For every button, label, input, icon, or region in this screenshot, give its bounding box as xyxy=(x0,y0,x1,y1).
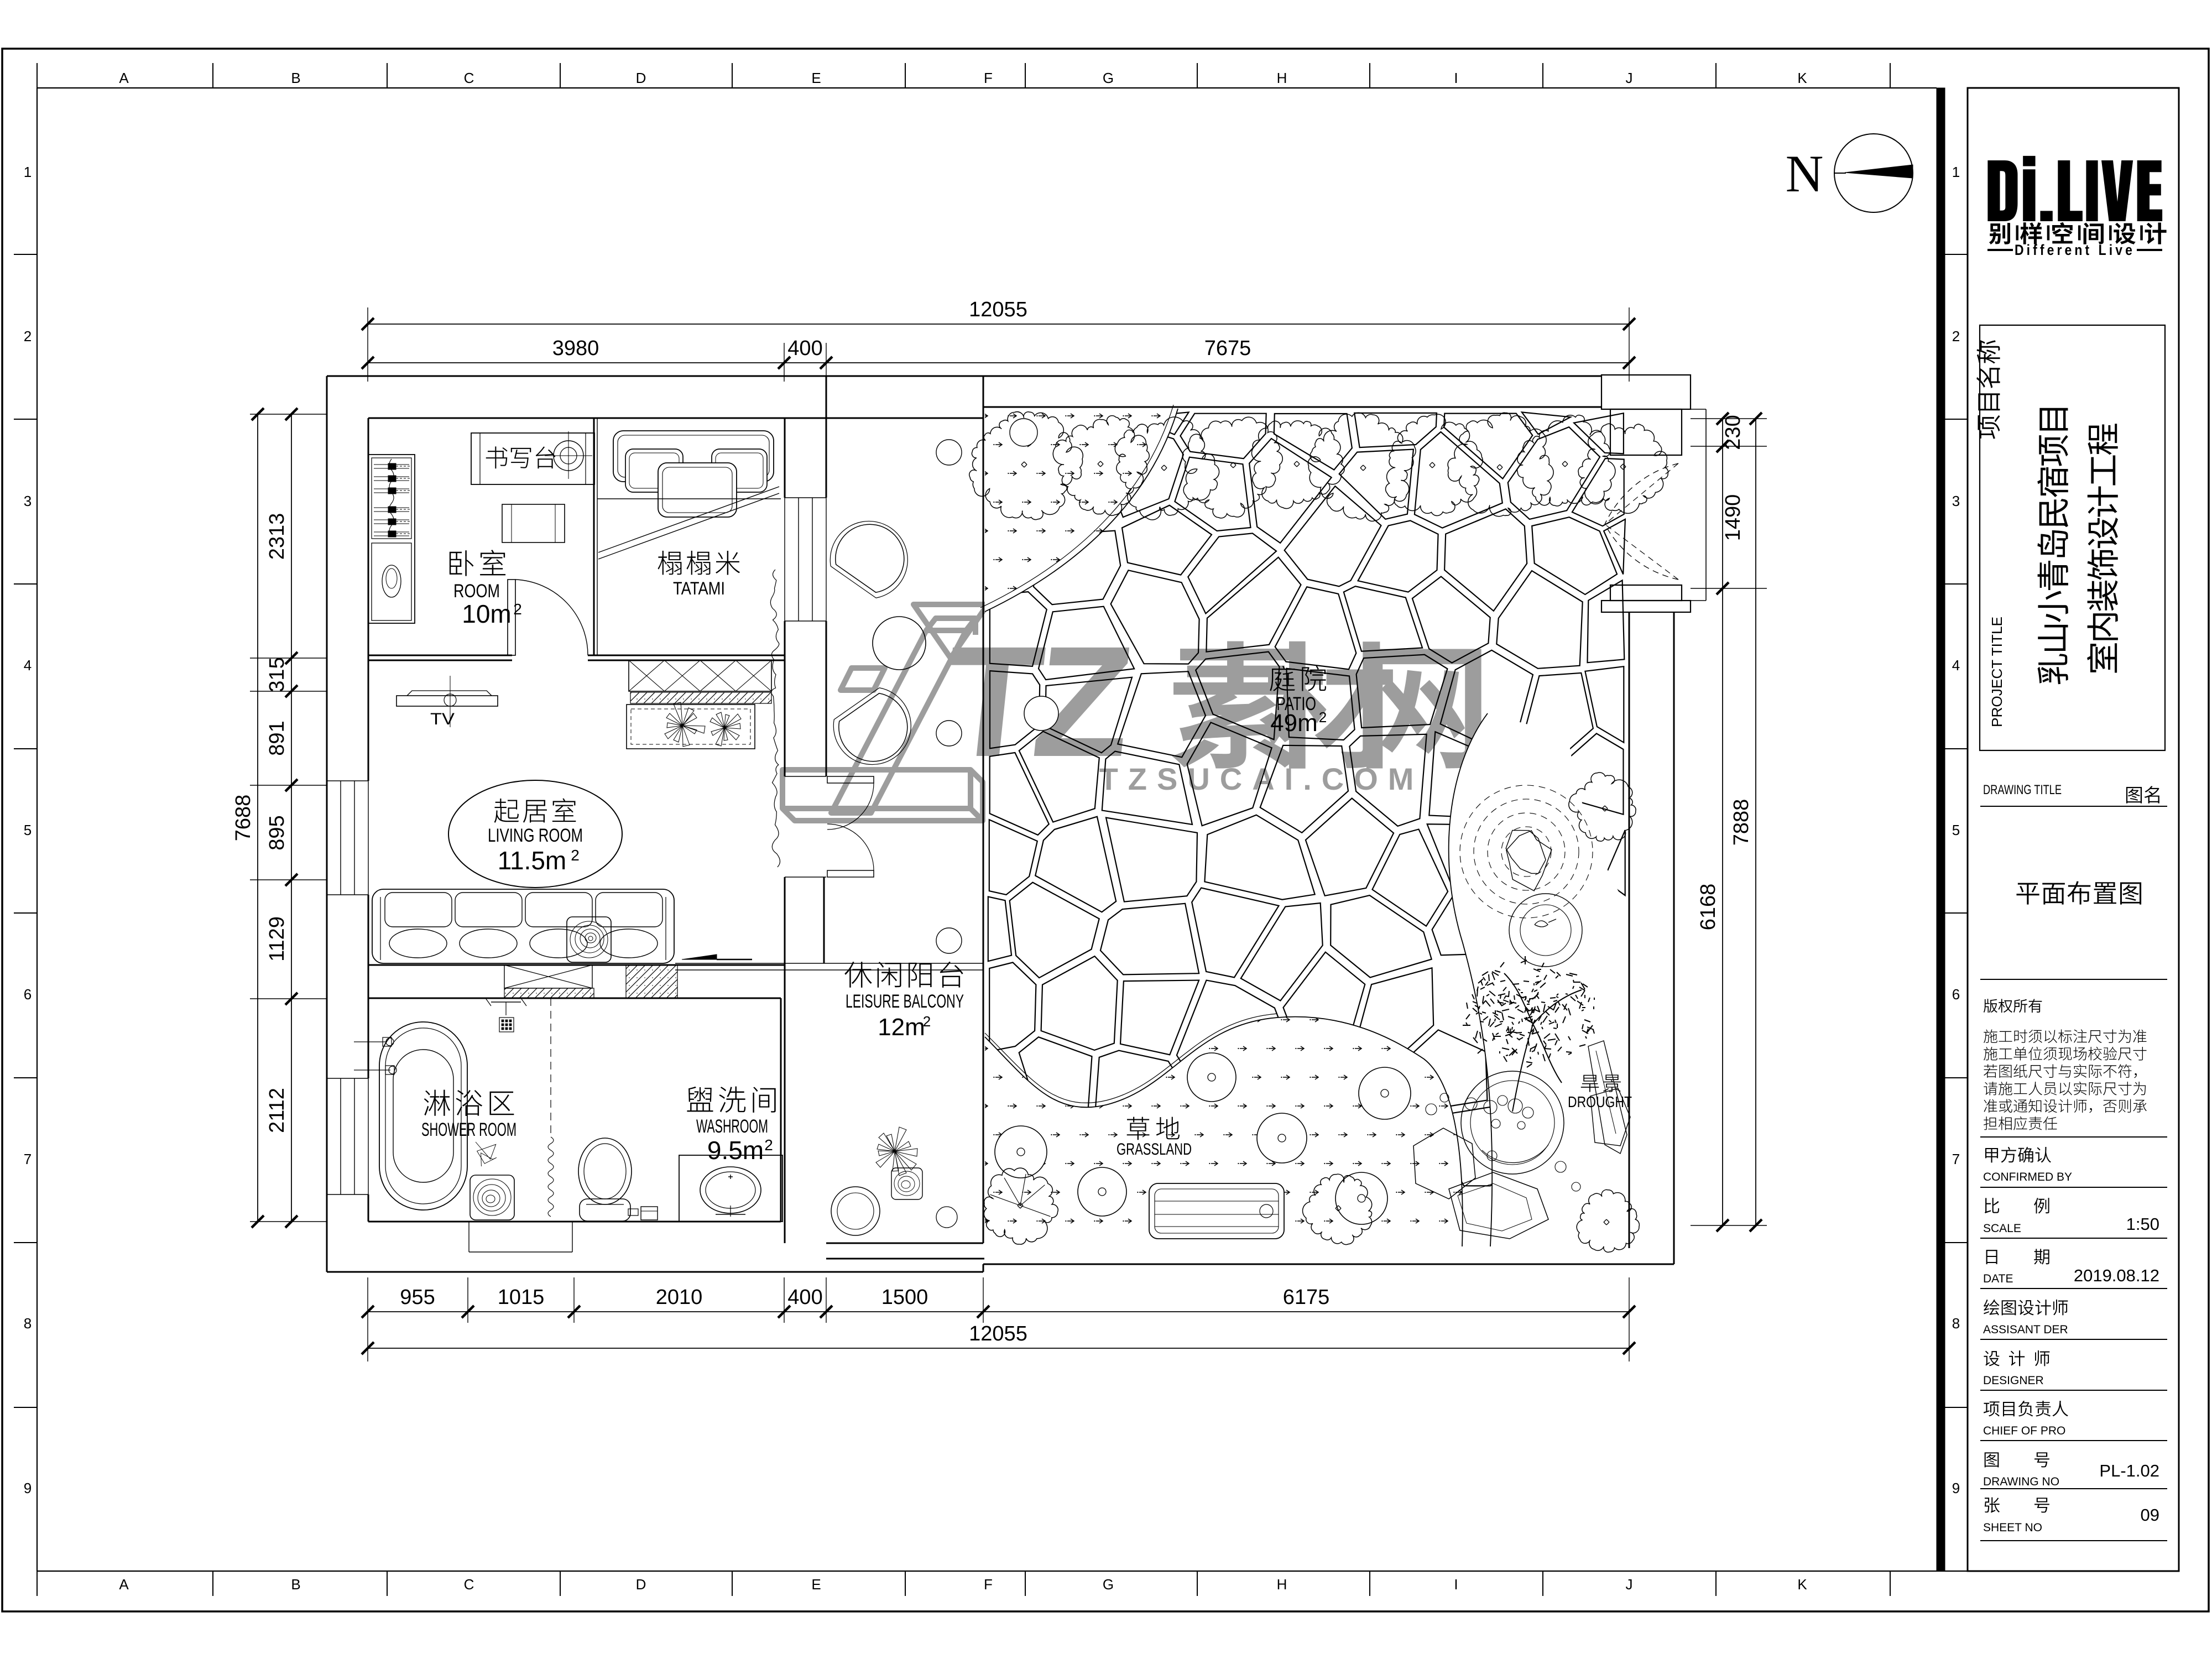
svg-text:2: 2 xyxy=(923,1013,931,1030)
svg-text:2019.08.12: 2019.08.12 xyxy=(2074,1266,2159,1285)
svg-text:DRAWING NO: DRAWING NO xyxy=(1983,1475,2059,1488)
svg-text:400: 400 xyxy=(787,1286,822,1309)
svg-text:Different Live: Different Live xyxy=(2015,242,2135,258)
svg-text:3: 3 xyxy=(1952,493,1960,509)
svg-text:2: 2 xyxy=(1319,709,1327,726)
svg-text:7: 7 xyxy=(24,1151,32,1167)
svg-text:I: I xyxy=(1454,1576,1458,1593)
svg-text:955: 955 xyxy=(400,1286,435,1309)
svg-text:1: 1 xyxy=(1952,164,1960,180)
svg-text:G: G xyxy=(1103,70,1114,86)
svg-text:ROOM: ROOM xyxy=(453,581,500,602)
svg-text:230: 230 xyxy=(1721,415,1745,450)
svg-text:I: I xyxy=(1454,70,1458,86)
svg-text:09: 09 xyxy=(2141,1505,2159,1525)
svg-text:6: 6 xyxy=(24,986,32,1003)
svg-text:F: F xyxy=(984,1576,993,1593)
svg-text:5: 5 xyxy=(24,822,32,838)
svg-text:2: 2 xyxy=(1952,328,1960,345)
svg-text:6168: 6168 xyxy=(1697,884,1720,931)
svg-text:J: J xyxy=(1626,1576,1633,1593)
svg-text:K: K xyxy=(1797,70,1807,86)
svg-text:4: 4 xyxy=(24,657,32,674)
svg-text:8: 8 xyxy=(1952,1315,1960,1332)
svg-text:49m: 49m xyxy=(1270,709,1318,737)
svg-text:8: 8 xyxy=(24,1315,32,1332)
svg-text:DATE: DATE xyxy=(1983,1272,2013,1285)
svg-text:9: 9 xyxy=(1952,1480,1960,1496)
svg-text:315: 315 xyxy=(265,657,289,692)
svg-text:TV: TV xyxy=(430,710,455,728)
svg-text:H: H xyxy=(1277,1576,1287,1593)
svg-text:ASSISANT DER: ASSISANT DER xyxy=(1983,1323,2068,1336)
svg-text:A: A xyxy=(119,70,129,86)
svg-text:7675: 7675 xyxy=(1204,337,1251,360)
svg-text:C: C xyxy=(464,1576,474,1593)
svg-text:N: N xyxy=(1786,144,1824,203)
svg-text:TATAMI: TATAMI xyxy=(673,578,725,598)
svg-text:A: A xyxy=(119,1576,129,1593)
svg-text:2: 2 xyxy=(571,847,580,864)
svg-text:D: D xyxy=(636,70,646,86)
svg-text:1: 1 xyxy=(24,164,32,180)
svg-text:2112: 2112 xyxy=(265,1088,289,1133)
svg-text:CHIEF OF PRO: CHIEF OF PRO xyxy=(1983,1425,2065,1437)
svg-text:9.5m: 9.5m xyxy=(707,1136,764,1165)
svg-text:GRASSLAND: GRASSLAND xyxy=(1117,1140,1192,1159)
svg-text:12055: 12055 xyxy=(969,298,1027,321)
svg-text:3: 3 xyxy=(24,493,32,509)
svg-text:6175: 6175 xyxy=(1283,1286,1330,1309)
svg-text:9: 9 xyxy=(24,1480,32,1496)
svg-text:400: 400 xyxy=(787,337,822,360)
svg-text:E: E xyxy=(811,70,821,86)
svg-text:2: 2 xyxy=(764,1136,773,1154)
svg-text:SHEET NO: SHEET NO xyxy=(1983,1521,2042,1534)
svg-text:B: B xyxy=(291,70,300,86)
svg-text:K: K xyxy=(1797,1576,1807,1593)
svg-text:2010: 2010 xyxy=(656,1286,703,1309)
svg-text:DESIGNER: DESIGNER xyxy=(1983,1374,2044,1387)
svg-text:1015: 1015 xyxy=(498,1286,545,1309)
svg-text:2: 2 xyxy=(513,601,522,618)
svg-text:B: B xyxy=(291,1576,300,1593)
svg-text:7: 7 xyxy=(1952,1151,1960,1167)
svg-text:895: 895 xyxy=(265,815,289,850)
svg-text:G: G xyxy=(1103,1576,1114,1593)
svg-text:F: F xyxy=(984,70,993,86)
svg-text:3980: 3980 xyxy=(552,337,599,360)
svg-text:1129: 1129 xyxy=(265,916,289,962)
svg-text:SCALE: SCALE xyxy=(1983,1222,2021,1235)
svg-text:1500: 1500 xyxy=(881,1286,928,1309)
svg-text:H: H xyxy=(1277,70,1287,86)
svg-text:5: 5 xyxy=(1952,822,1960,838)
svg-text:12m: 12m xyxy=(878,1014,925,1041)
svg-text:E: E xyxy=(811,1576,821,1593)
svg-text:2313: 2313 xyxy=(265,513,289,560)
svg-text:1:50: 1:50 xyxy=(2126,1214,2159,1234)
svg-text:10m: 10m xyxy=(462,599,511,628)
svg-text:WASHROOM: WASHROOM xyxy=(696,1116,768,1137)
svg-text:CONFIRMED BY: CONFIRMED BY xyxy=(1983,1171,2072,1183)
svg-text:DROUGHT: DROUGHT xyxy=(1568,1093,1632,1110)
svg-text:PL-1.02: PL-1.02 xyxy=(2099,1461,2159,1480)
svg-text:2: 2 xyxy=(24,328,32,345)
svg-text:891: 891 xyxy=(265,721,289,755)
svg-text:7688: 7688 xyxy=(232,795,255,842)
svg-text:4: 4 xyxy=(1952,657,1960,674)
svg-text:LIVING ROOM: LIVING ROOM xyxy=(488,825,583,846)
svg-text:11.5m: 11.5m xyxy=(498,846,566,875)
svg-text:DRAWING TITLE: DRAWING TITLE xyxy=(1983,782,2062,797)
svg-text:SHOWER ROOM: SHOWER ROOM xyxy=(421,1119,517,1140)
svg-text:6: 6 xyxy=(1952,986,1960,1003)
svg-text:LEISURE BALCONY: LEISURE BALCONY xyxy=(846,991,964,1012)
svg-text:1490: 1490 xyxy=(1721,494,1745,541)
svg-text:J: J xyxy=(1626,70,1633,86)
svg-text:12055: 12055 xyxy=(969,1322,1027,1345)
svg-text:C: C xyxy=(464,70,474,86)
svg-text:PROJECT TITLE: PROJECT TITLE xyxy=(1989,617,2005,727)
svg-text:D: D xyxy=(636,1576,646,1593)
svg-text:7888: 7888 xyxy=(1730,799,1753,846)
